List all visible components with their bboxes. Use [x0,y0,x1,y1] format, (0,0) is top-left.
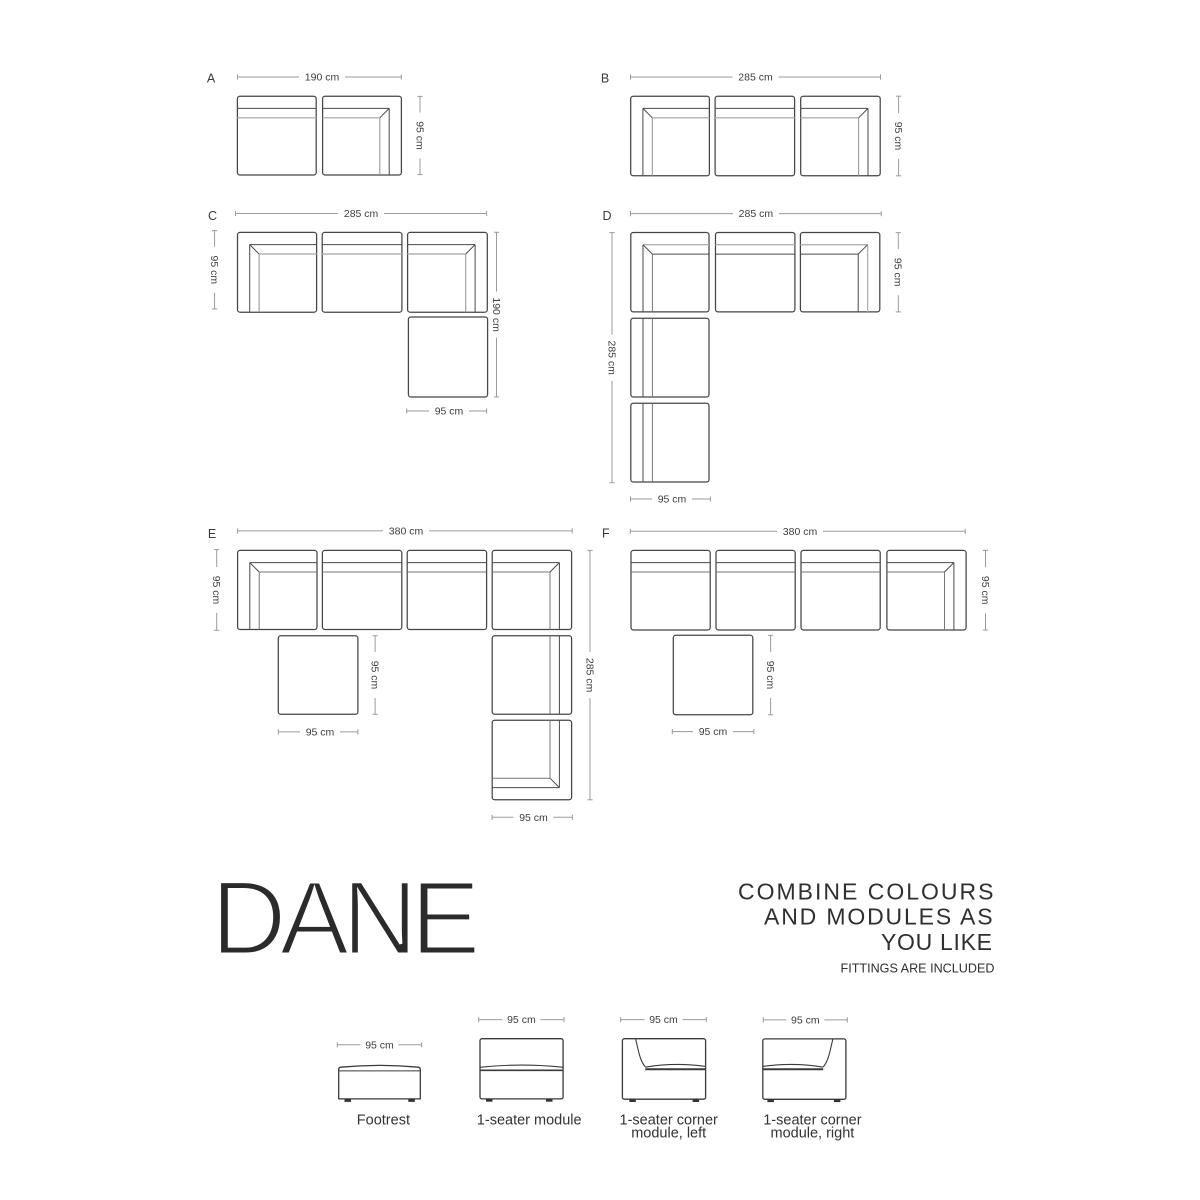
svg-text:95 cm: 95 cm [210,576,222,605]
svg-text:380 cm: 380 cm [389,526,424,538]
svg-text:190 cm: 190 cm [490,297,502,332]
svg-text:285 cm: 285 cm [344,208,379,220]
svg-text:95 cm: 95 cm [413,121,425,150]
svg-text:95 cm: 95 cm [208,256,220,285]
svg-text:AND MODULES AS: AND MODULES AS [764,904,994,930]
svg-text:COMBINE COLOURS: COMBINE COLOURS [738,878,995,904]
svg-text:DANE: DANE [211,860,477,977]
svg-text:95 cm: 95 cm [507,1014,536,1026]
svg-text:95 cm: 95 cm [764,661,776,690]
svg-text:285 cm: 285 cm [583,658,595,693]
svg-text:C: C [208,209,217,223]
svg-text:380 cm: 380 cm [783,526,818,538]
svg-text:95 cm: 95 cm [892,122,904,151]
svg-text:E: E [208,527,216,541]
svg-text:95 cm: 95 cm [791,1015,820,1027]
svg-text:B: B [601,72,609,86]
svg-text:95 cm: 95 cm [435,406,464,418]
svg-text:285 cm: 285 cm [605,340,617,375]
svg-text:D: D [602,209,611,223]
svg-text:95 cm: 95 cm [979,576,991,605]
svg-text:95 cm: 95 cm [649,1014,678,1026]
svg-text:F: F [602,527,610,541]
svg-text:95 cm: 95 cm [892,258,904,287]
svg-text:FITTINGS ARE INCLUDED: FITTINGS ARE INCLUDED [841,962,995,976]
svg-text:module, right: module, right [770,1126,854,1142]
svg-text:Footrest: Footrest [357,1113,410,1129]
svg-text:190 cm: 190 cm [305,72,340,84]
svg-text:95 cm: 95 cm [369,661,381,690]
svg-text:95 cm: 95 cm [365,1039,394,1051]
svg-text:95 cm: 95 cm [699,726,728,738]
svg-text:YOU LIKE: YOU LIKE [881,929,993,955]
svg-text:module, left: module, left [631,1126,706,1142]
svg-text:1-seater module: 1-seater module [477,1113,582,1129]
svg-text:285 cm: 285 cm [738,72,773,84]
svg-text:95 cm: 95 cm [519,812,548,824]
svg-text:95 cm: 95 cm [658,494,687,506]
svg-text:95 cm: 95 cm [306,727,335,739]
svg-text:285 cm: 285 cm [739,208,774,220]
svg-text:A: A [207,72,216,86]
